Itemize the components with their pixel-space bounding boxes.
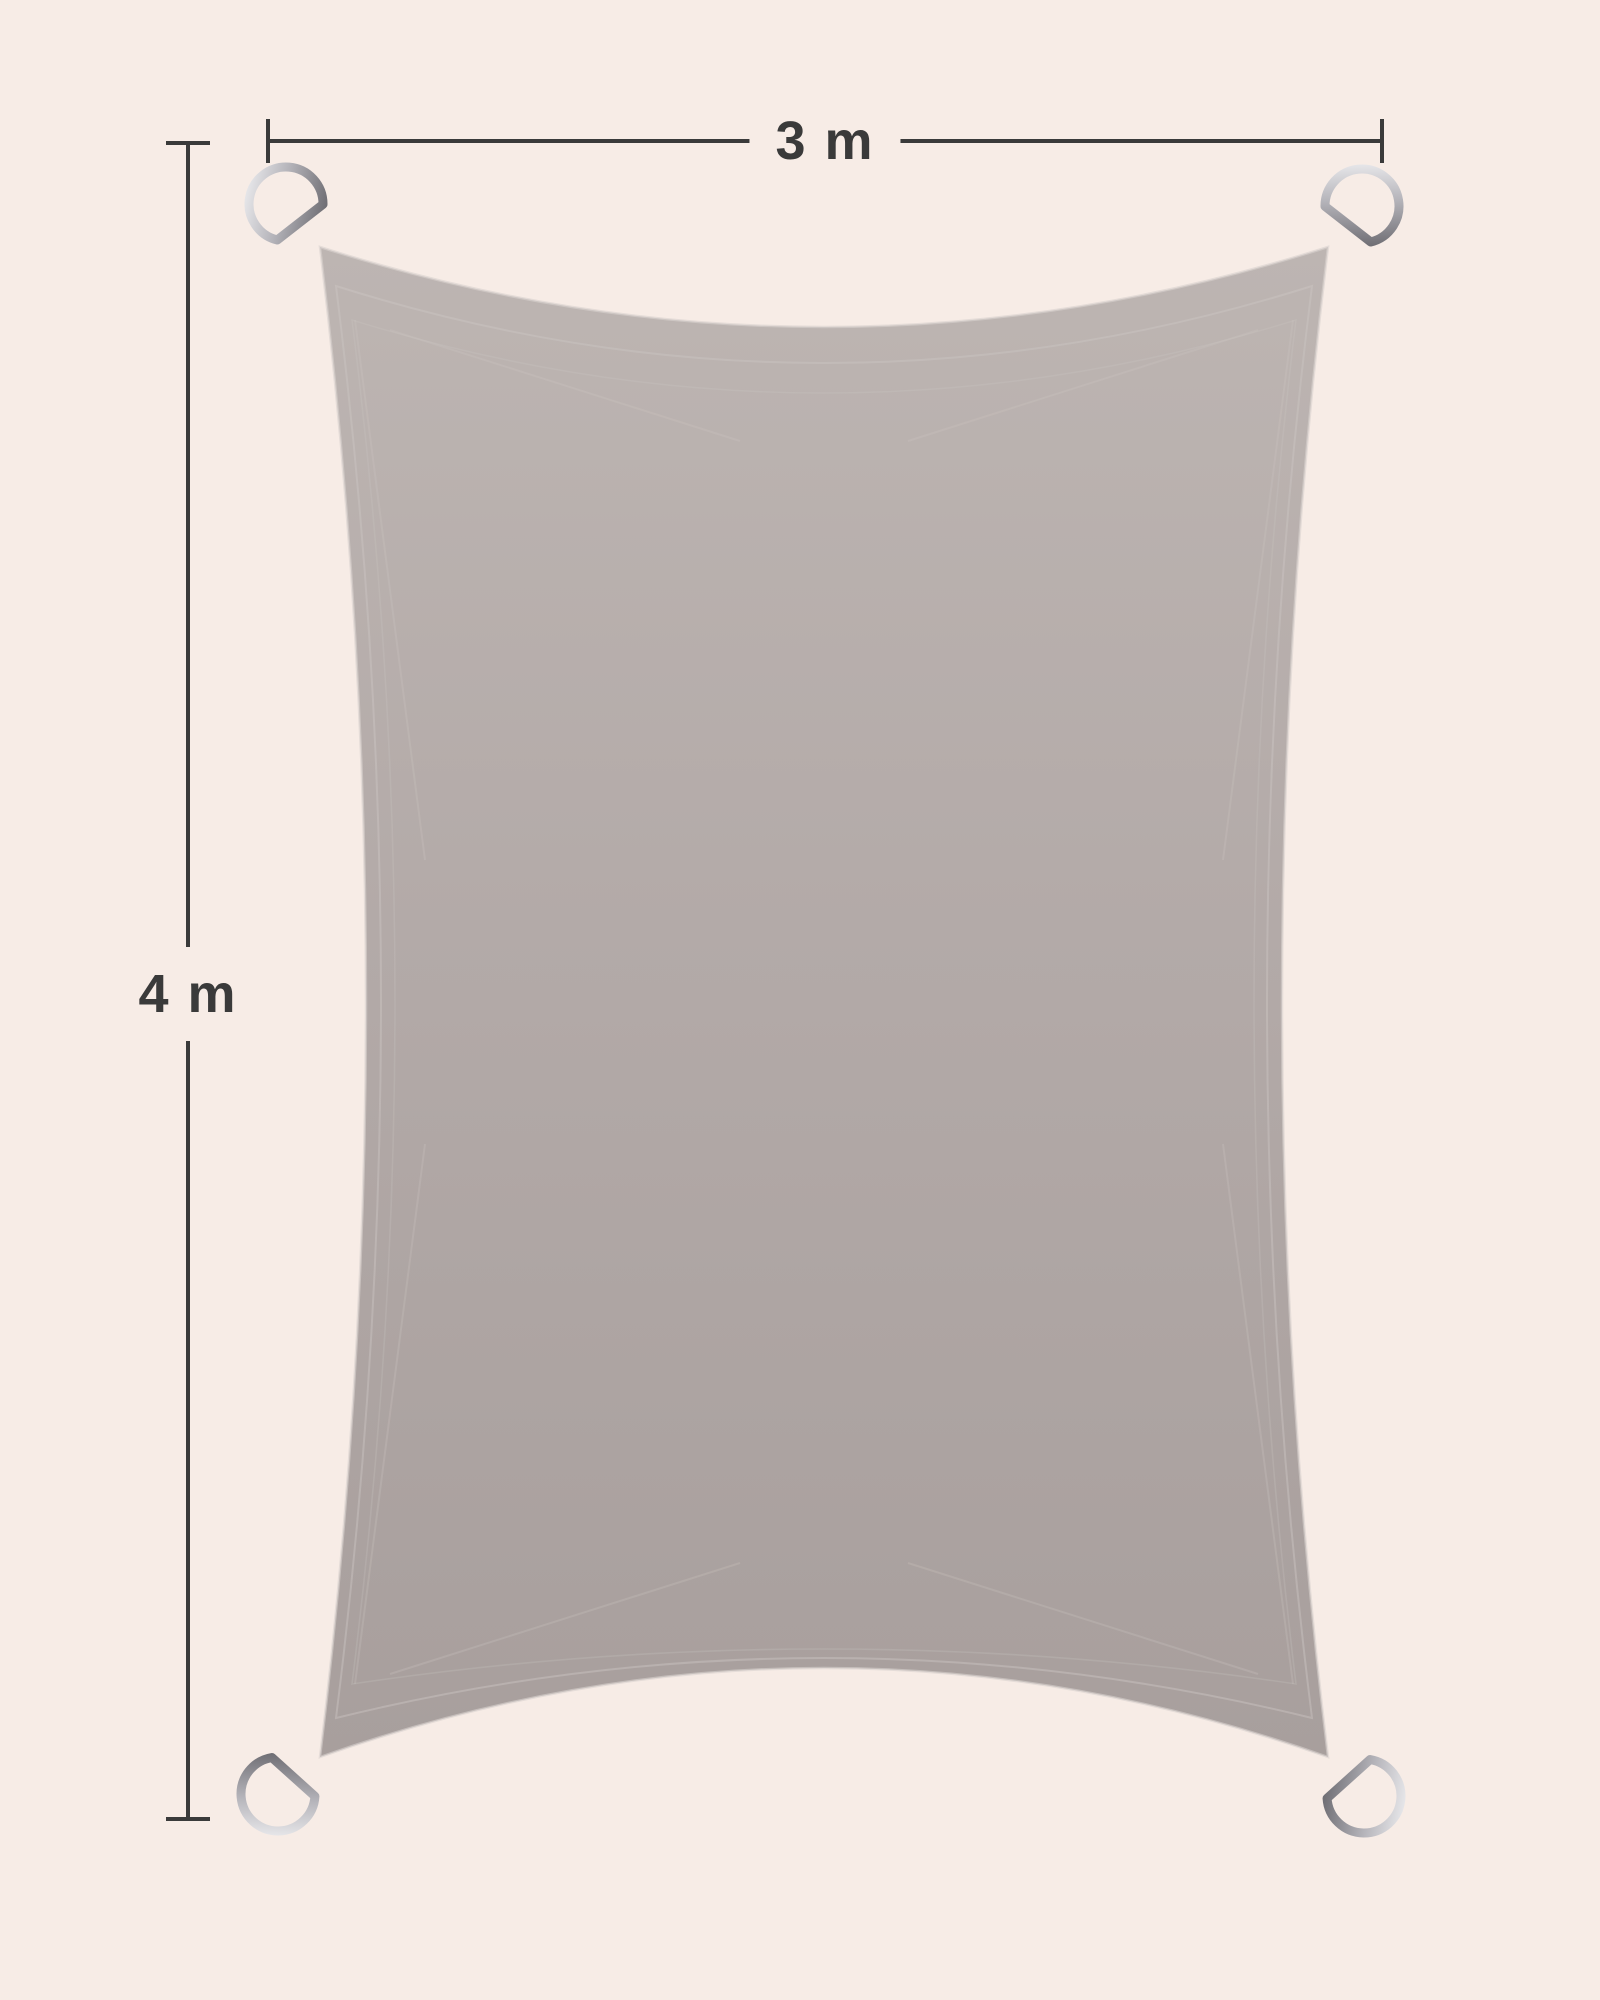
dimension-tick-bottom (166, 1817, 210, 1821)
product-diagram: 3 m 4 m (0, 0, 1600, 2000)
height-dimension: 4 m (166, 141, 210, 1821)
width-dimension: 3 m (266, 119, 1384, 163)
d-ring-bottom-left (226, 1752, 321, 1846)
height-dimension-label: 4 m (128, 947, 247, 1041)
dimension-tick-right (1380, 119, 1384, 163)
d-ring-bottom-right (1321, 1754, 1416, 1848)
d-ring-top-right (1319, 154, 1414, 247)
d-ring-top-left (234, 152, 329, 245)
width-dimension-label: 3 m (749, 108, 900, 174)
sail-fabric (320, 247, 1328, 1757)
